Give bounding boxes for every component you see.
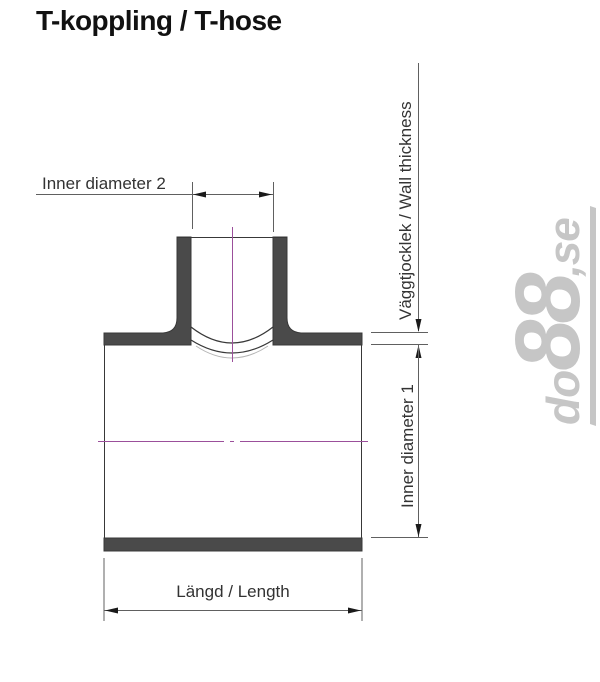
id1-arrow-down [416, 524, 422, 537]
fitting-left-wall [104, 237, 191, 345]
id2-arrow-right [259, 192, 272, 198]
id2-arrow-left [193, 192, 206, 198]
product-diagram-page: T-koppling / T-hose [0, 0, 600, 682]
label-inner-diameter-1: Inner diameter 1 [398, 384, 418, 508]
logo-text-do: do [540, 371, 586, 425]
label-length: Längd / Length [104, 582, 362, 602]
fitting-right-wall [273, 237, 362, 345]
do88-watermark-logo: do 88 ,se [502, 137, 600, 437]
length-arrow-left [105, 608, 118, 614]
fitting-bottom-wall [104, 538, 362, 551]
label-wall-thickness: Väggtjocklek / Wall thickness [396, 101, 416, 320]
logo-underline [590, 206, 596, 426]
length-arrow-right [348, 608, 361, 614]
logo-text-se: ,se [543, 218, 587, 276]
wt-arrow-down [416, 319, 422, 332]
logo-text-88: 88 [502, 276, 594, 370]
label-inner-diameter-2: Inner diameter 2 [42, 174, 166, 194]
